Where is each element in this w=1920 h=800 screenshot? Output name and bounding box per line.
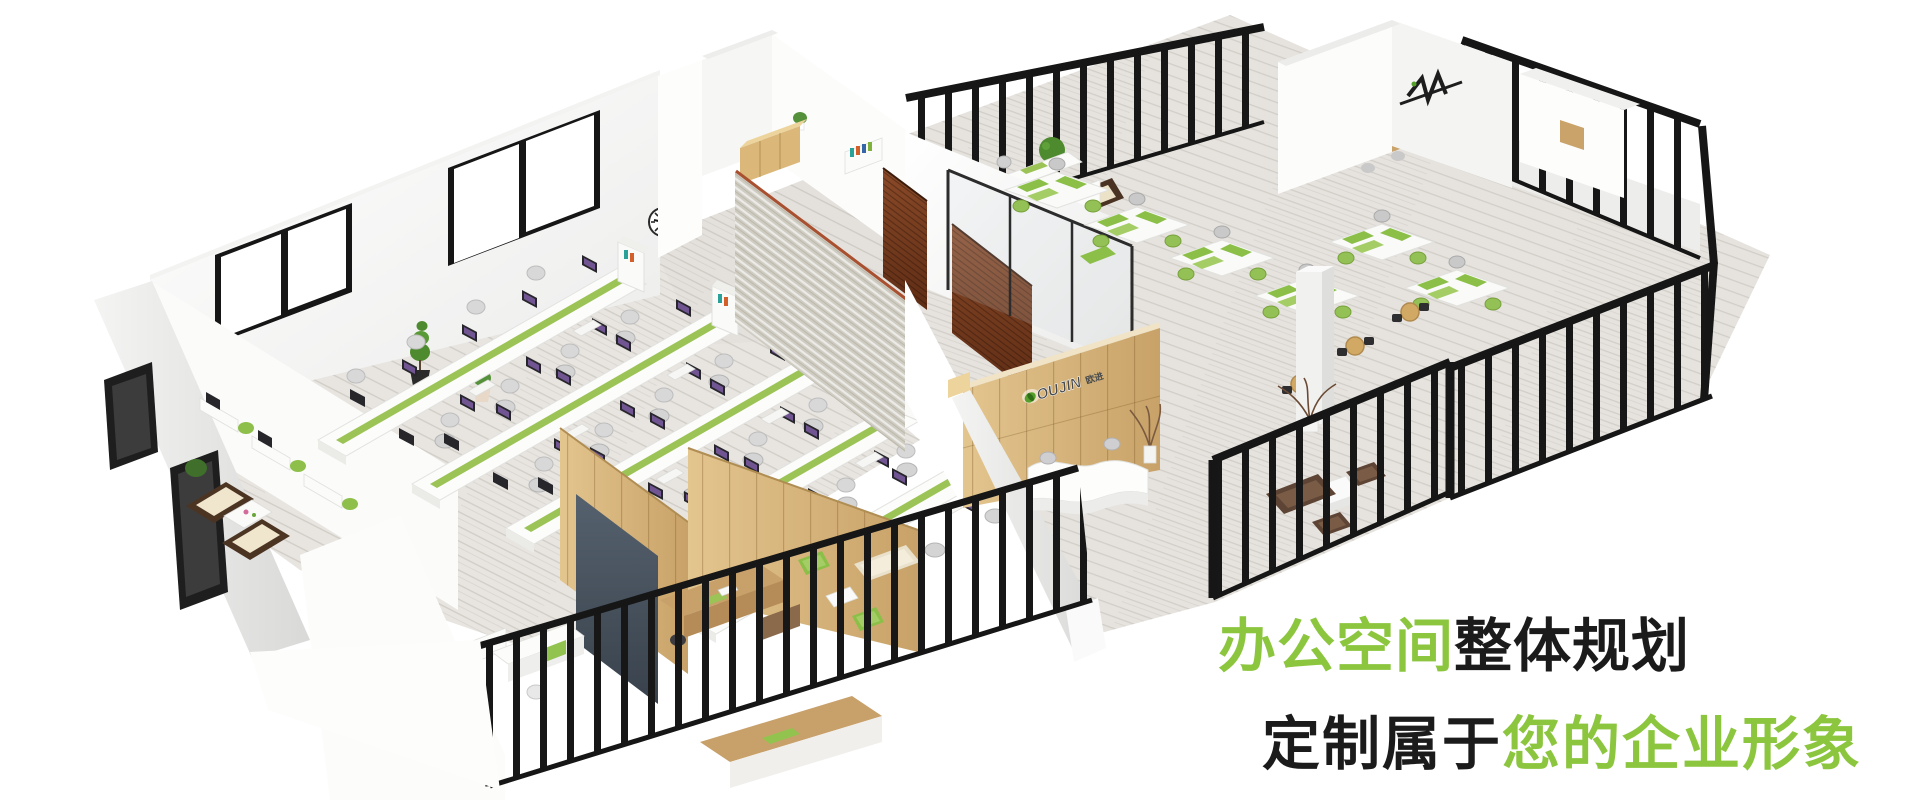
reception-chair <box>1040 452 1056 464</box>
headline-line2-green: 您的企业形象 <box>1502 712 1862 777</box>
headline-line1-black: 整体规划 <box>1454 614 1690 679</box>
headline-line1-green: 办公空间 <box>1218 614 1454 679</box>
office-chair <box>997 156 1011 168</box>
headline-line2-black: 定制属于 <box>1262 712 1502 777</box>
reception-chair <box>1104 438 1120 450</box>
headline-line2: 定制属于您的企业形象 <box>1262 712 1862 777</box>
headline: 办公空间整体规划 定制属于您的企业形象 <box>1218 614 1862 777</box>
headline-line1: 办公空间整体规划 <box>1218 614 1690 679</box>
office-promo-page: OUJIN 欧进 <box>0 0 1920 800</box>
office-render-illustration: OUJIN 欧进 <box>0 0 1920 800</box>
